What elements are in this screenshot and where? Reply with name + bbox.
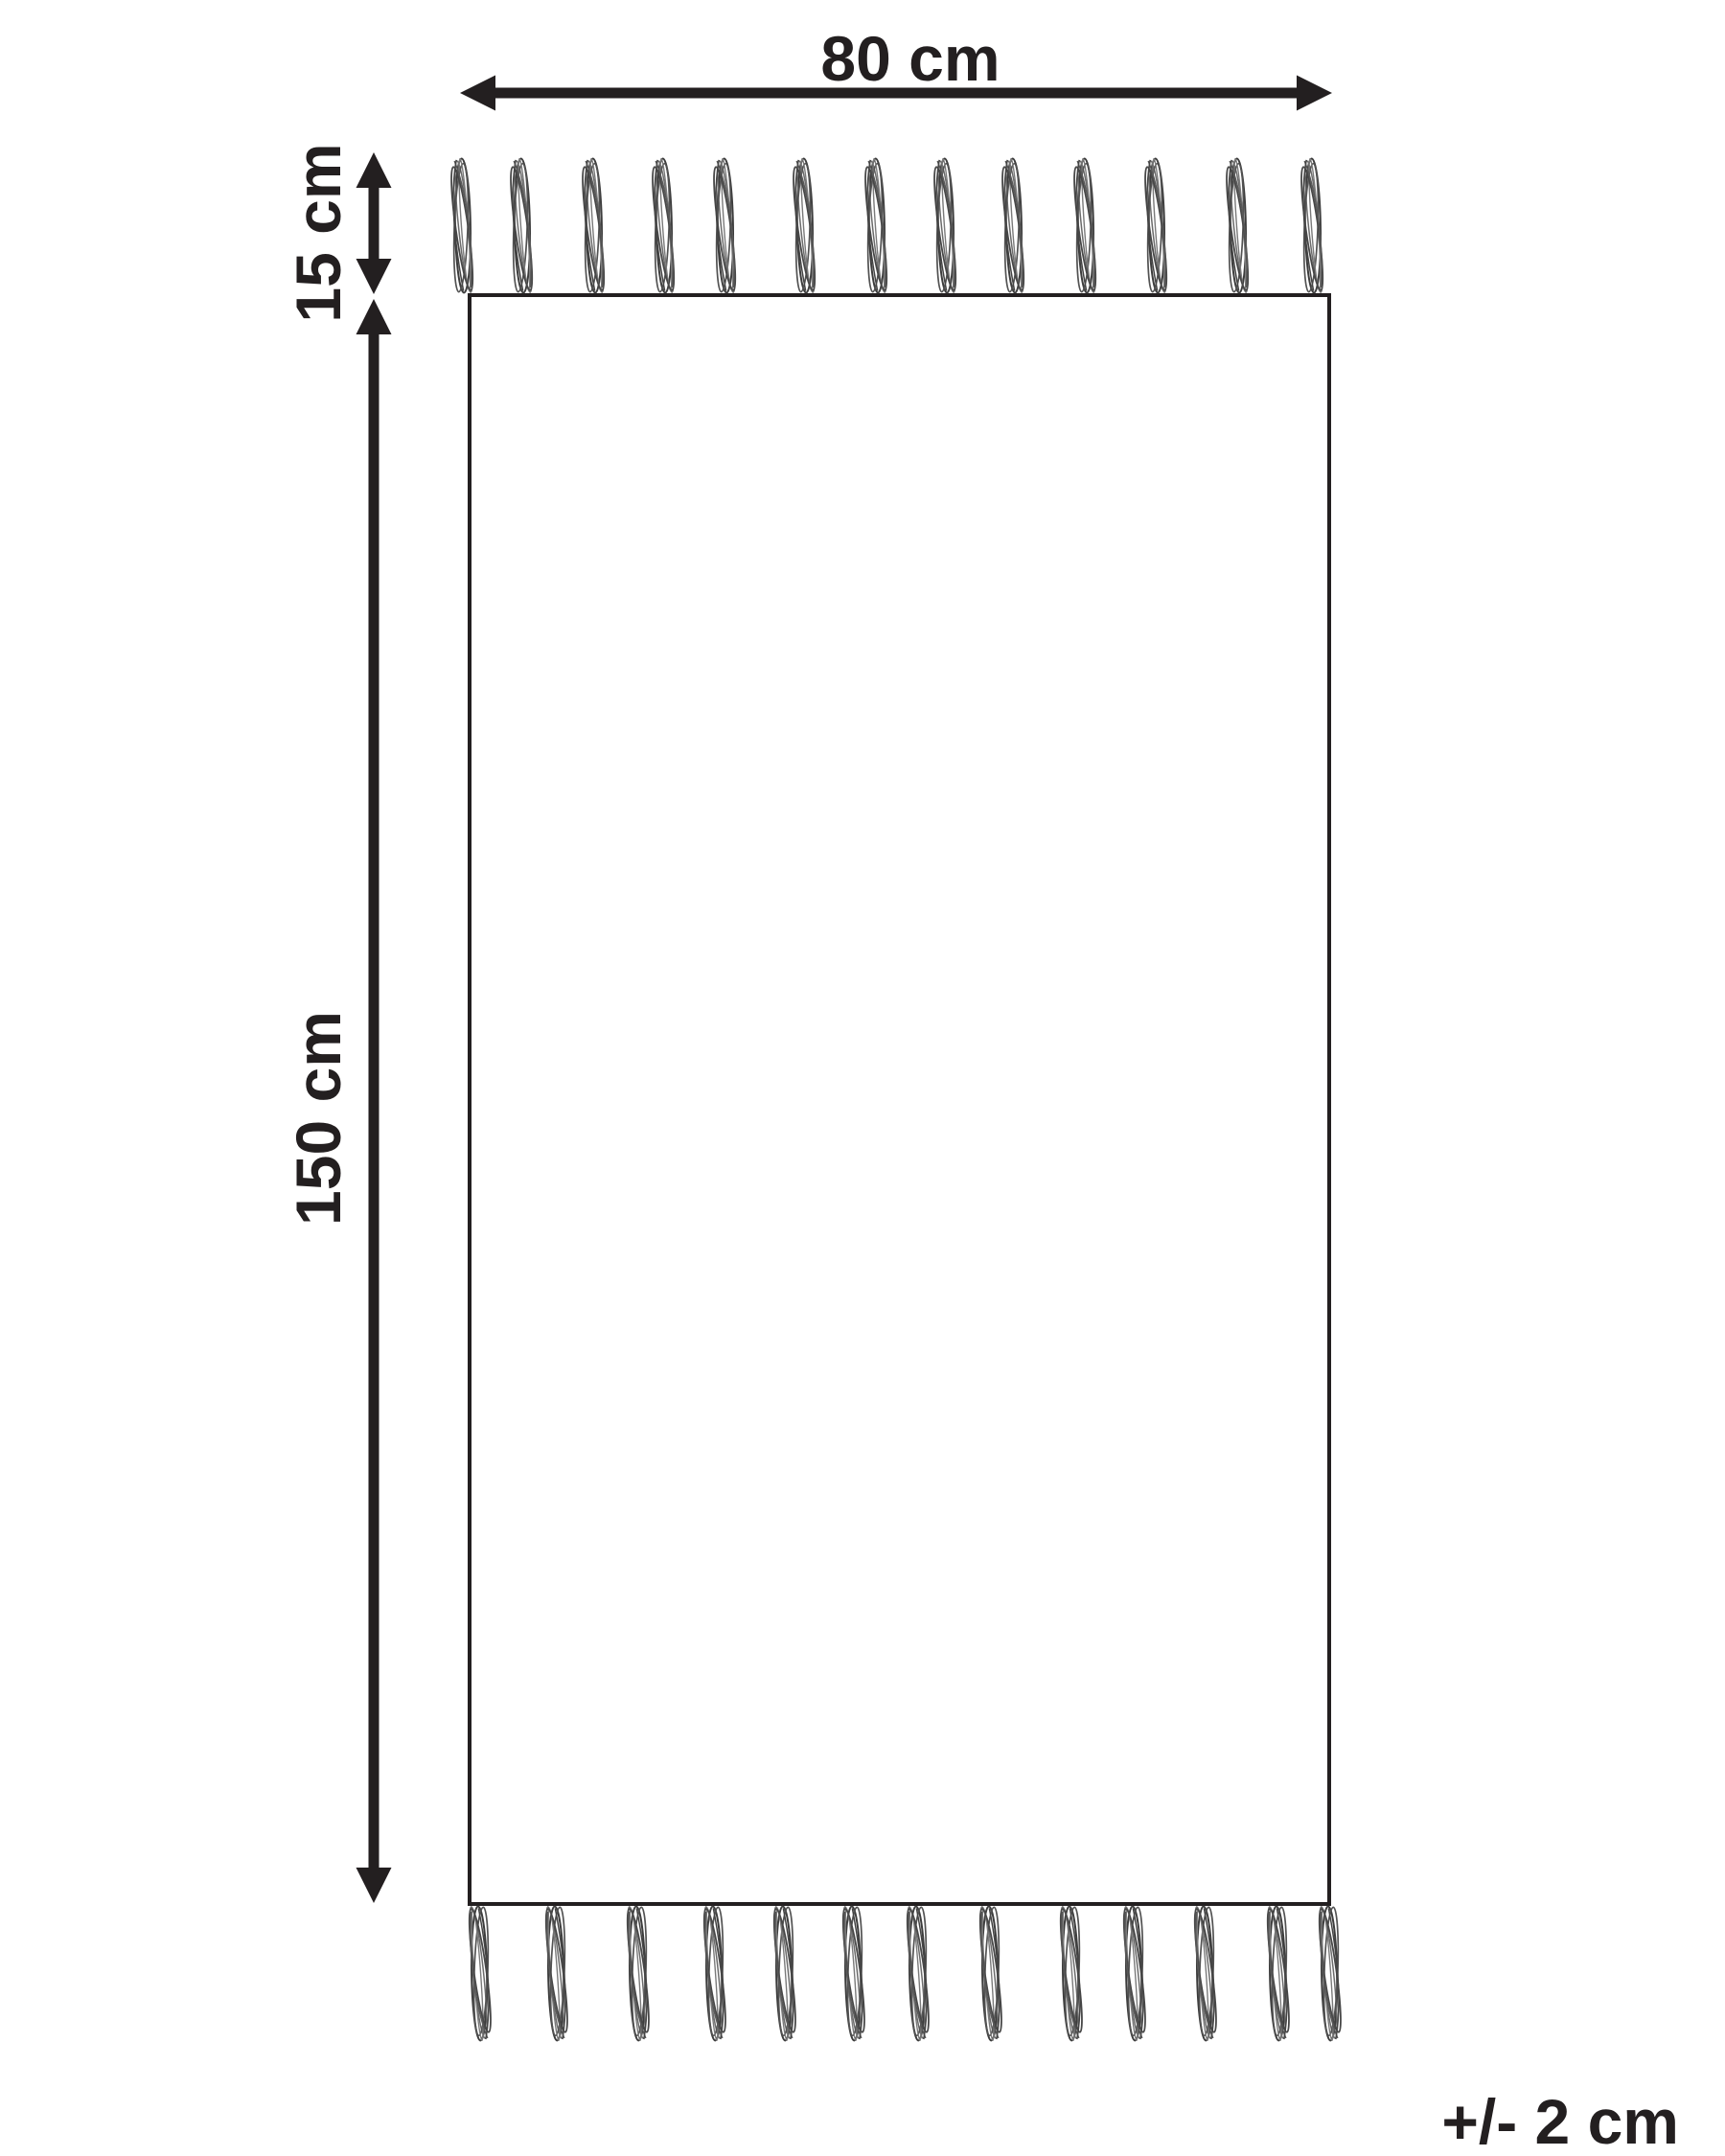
- arrowhead-down-icon: [356, 259, 392, 294]
- arrowhead-up-icon: [356, 299, 392, 334]
- length-arrow: [356, 299, 392, 1903]
- arrowhead-down-icon: [356, 1868, 392, 1903]
- tassel: [1066, 158, 1102, 294]
- tassel: [1117, 1905, 1154, 2041]
- tassel: [926, 158, 962, 294]
- fringe-bottom: [463, 1905, 1349, 2041]
- tassel: [574, 158, 610, 294]
- width-label: 80 cm: [820, 23, 1000, 94]
- tassel: [974, 1905, 1010, 2041]
- tassel: [1054, 1905, 1091, 2041]
- tolerance-label: +/- 2 cm: [1441, 2086, 1679, 2156]
- tassel: [901, 1905, 937, 2041]
- tassel: [540, 1905, 576, 2041]
- tassel: [1261, 1905, 1298, 2041]
- tassel: [785, 158, 821, 294]
- diagram-canvas: 80 cm 15 cm 150 cm +/- 2 cm: [0, 0, 1725, 2156]
- tassel: [621, 1905, 657, 2041]
- tassel: [1188, 1905, 1225, 2041]
- tassel: [1293, 158, 1329, 294]
- tassel: [1137, 158, 1173, 294]
- tassel: [857, 158, 893, 294]
- tassel: [837, 1905, 873, 2041]
- rug-body: [470, 295, 1329, 1904]
- tassel: [463, 1905, 499, 2041]
- tassel: [644, 158, 680, 294]
- tassel: [502, 158, 539, 294]
- fringe-height-label: 15 cm: [283, 143, 354, 322]
- length-label: 150 cm: [283, 1011, 354, 1226]
- tassel: [705, 158, 742, 294]
- fringe-top: [443, 158, 1329, 294]
- fringe-height-arrow: [356, 152, 392, 294]
- arrowhead-up-icon: [356, 152, 392, 188]
- tassel: [443, 158, 479, 294]
- rug-dimension-diagram: 80 cm 15 cm 150 cm +/- 2 cm: [0, 0, 1725, 2156]
- tassel: [768, 1905, 804, 2041]
- tassel: [1218, 158, 1254, 294]
- arrowhead-right-icon: [1297, 76, 1332, 111]
- tassel: [1313, 1905, 1349, 2041]
- arrowhead-left-icon: [460, 76, 495, 111]
- tassel: [994, 158, 1030, 294]
- tassel: [698, 1905, 734, 2041]
